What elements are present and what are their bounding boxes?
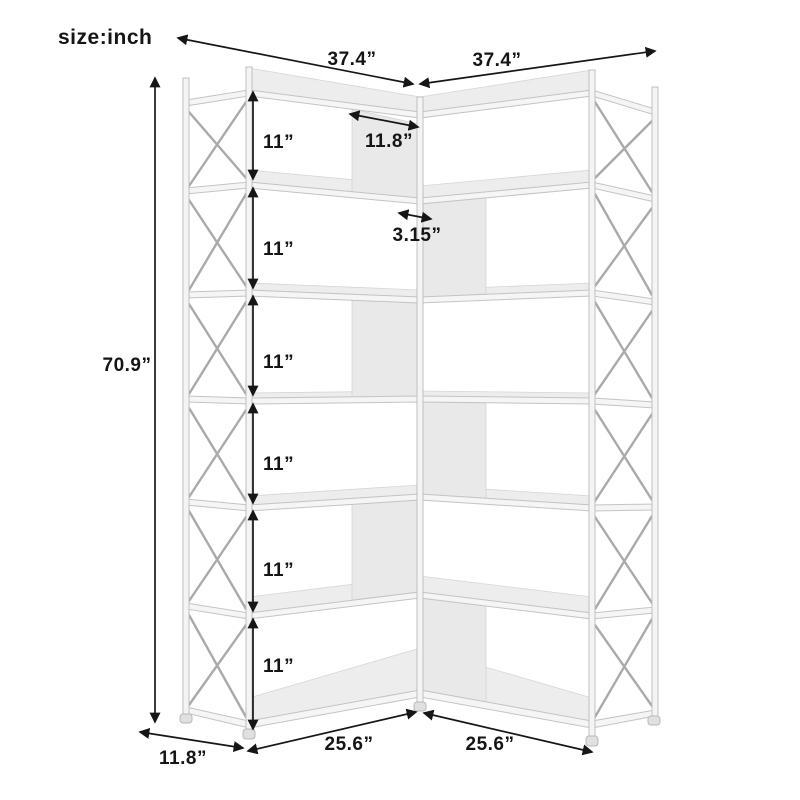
total-height-label: 70.9” <box>103 355 152 376</box>
tier-1-height-label: 11” <box>263 132 294 153</box>
top-right-width-label: 37.4” <box>473 50 522 71</box>
top-shelf-depth-label: 11.8” <box>365 131 413 152</box>
tier-5-height-label: 11” <box>263 560 294 581</box>
bottom-right-width-label: 25.6” <box>466 734 515 755</box>
tier-3-height-label: 11” <box>263 352 294 373</box>
corner-offset-label: 3.15” <box>393 225 442 246</box>
bottom-left-width-label: 25.6” <box>325 734 374 755</box>
left-end-x-braces <box>189 102 246 717</box>
bottom-side-depth-label: 11.8” <box>159 748 207 769</box>
corner-bookshelf-diagram: size:inch 37.4” 37.4” 11.8” 3.15” 70.9” … <box>0 0 800 800</box>
product-dimension-diagram: size:inch 37.4” 37.4” 11.8” 3.15” 70.9” … <box>0 0 800 800</box>
top-left-width-label: 37.4” <box>328 49 377 70</box>
tier-6-height-label: 11” <box>263 656 294 677</box>
size-unit-note: size:inch <box>58 26 152 49</box>
arrow-bottom-side-depth <box>140 732 243 748</box>
tier-2-height-label: 11” <box>263 239 294 260</box>
tier-4-height-label: 11” <box>263 454 294 475</box>
bookshelf-illustration <box>180 67 660 746</box>
